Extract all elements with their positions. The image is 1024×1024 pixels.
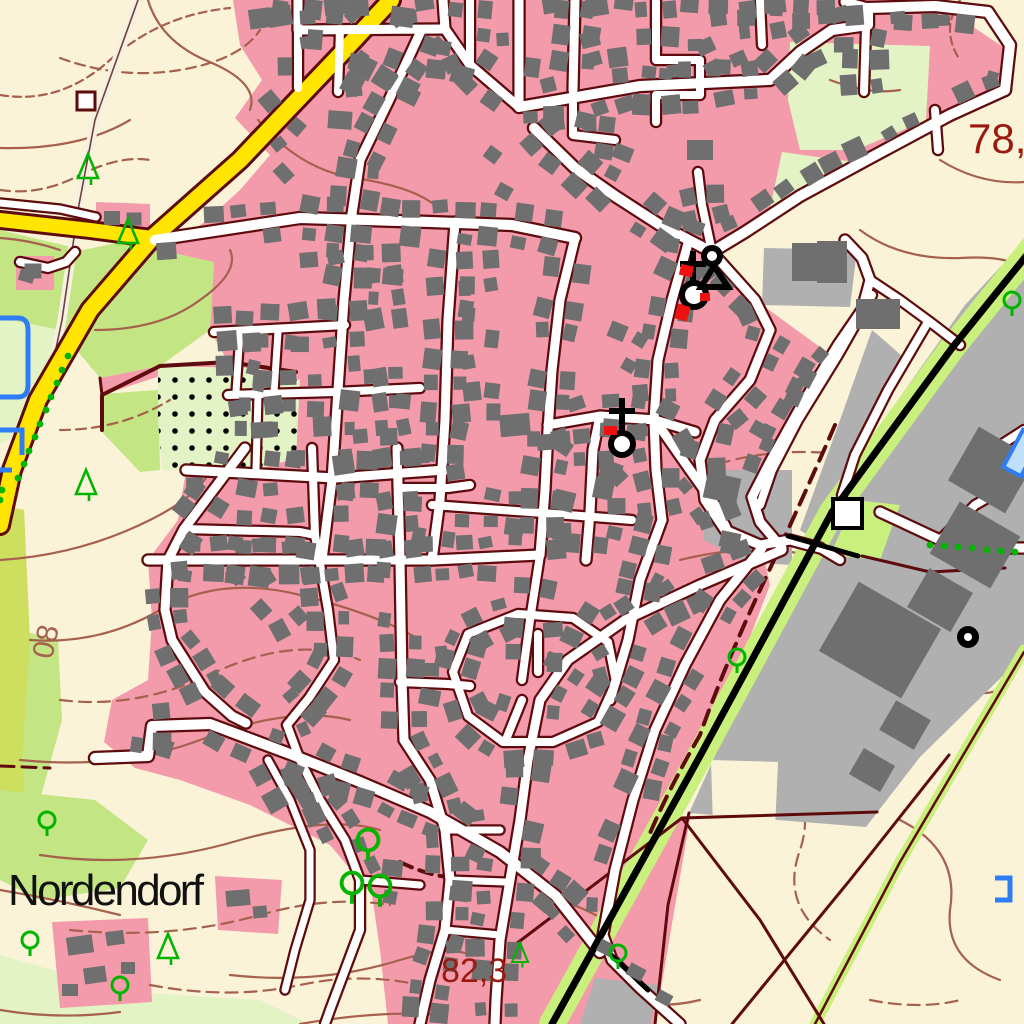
svg-text:08: 08: [27, 622, 66, 662]
svg-text:Nordendorf: Nordendorf: [8, 866, 205, 915]
svg-text:78,0: 78,0: [968, 115, 1024, 162]
svg-text:82,3: 82,3: [441, 952, 507, 990]
